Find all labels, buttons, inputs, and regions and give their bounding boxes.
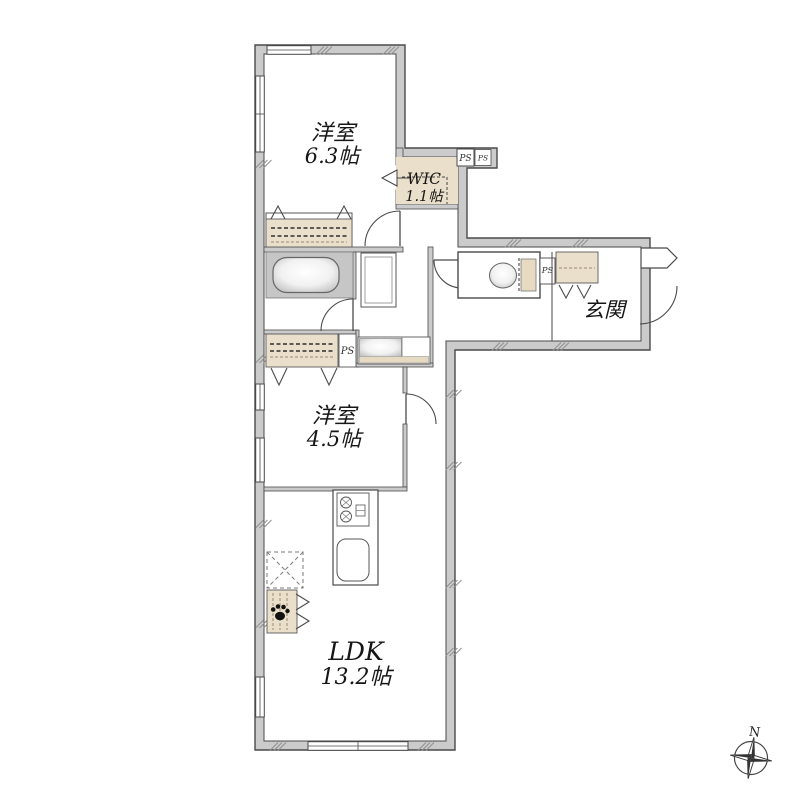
- toilet-room: [458, 252, 540, 298]
- label-bedroom1-name: 洋室: [311, 121, 358, 146]
- pipe-space-toilet: PS: [540, 258, 555, 284]
- window-west-ldk: [256, 677, 265, 717]
- label-bedroom2-size: 4.5帖: [306, 427, 364, 451]
- kitchen-counter: [333, 490, 378, 585]
- washing-machine-pan: [361, 253, 396, 307]
- window-west-bedroom2-upper: [256, 384, 265, 410]
- label-ldk-name: LDK: [327, 637, 385, 666]
- window-west-bedroom2-lower: [256, 438, 265, 482]
- pipe-space-label: PS: [458, 154, 471, 164]
- compass: N: [727, 722, 776, 781]
- label-wic-name: WIC: [407, 170, 441, 188]
- compass-north-label: N: [748, 725, 761, 741]
- stove-2-burner-icon: [337, 493, 369, 526]
- washbasin: [358, 337, 430, 364]
- label-entrance: 玄関: [583, 298, 628, 322]
- toilet-tank: [521, 259, 536, 291]
- label-bedroom1-size: 6.3帖: [305, 144, 362, 168]
- label-ldk-size: 13.2帖: [321, 665, 395, 690]
- pipe-space-label: PS: [340, 346, 355, 357]
- toilet-bowl: [490, 263, 517, 288]
- pipe-space-closet: PS: [339, 334, 356, 367]
- pipe-space-top: PS PS: [457, 149, 491, 166]
- pipe-space-label-small: PS: [477, 154, 488, 163]
- window-south-ldk: [308, 742, 408, 751]
- label-bedroom2-name: 洋室: [312, 404, 359, 429]
- label-wic-size: 1.1帖: [405, 188, 445, 205]
- bathtub: [266, 252, 353, 298]
- kitchen-sink-icon: [337, 539, 369, 581]
- window-top-bedroom1: [267, 46, 311, 55]
- window-west-bedroom1: [256, 76, 265, 152]
- floor-plan: PS PS PS PS: [0, 0, 800, 800]
